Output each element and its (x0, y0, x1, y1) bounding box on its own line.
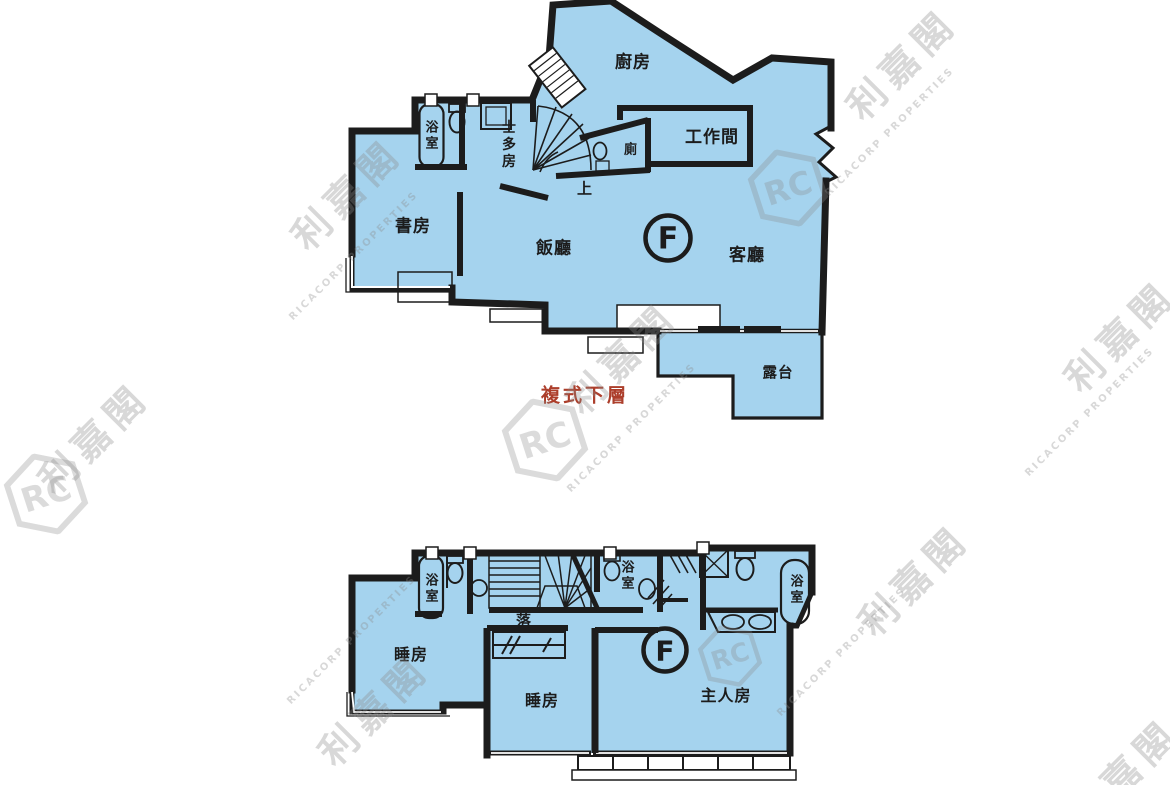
room-label-kitchen: 廚房 (615, 48, 651, 73)
room-label-balcony: 露台 (763, 362, 794, 383)
floorplan-page: 廚房 浴室 士多房 廁 工作間 上 書房 飯廳 客廳 露台 F 複式下層 浴室 … (0, 0, 1170, 785)
room-label-bathroom-middle: 浴室 (620, 560, 633, 592)
svg-text:RC: RC (759, 163, 817, 214)
room-label-dining: 飯廳 (536, 234, 572, 259)
room-label-bedroom-middle: 睡房 (525, 687, 559, 711)
svg-text:RC: RC (16, 468, 76, 521)
room-label-work-room: 工作間 (685, 123, 739, 148)
room-label-bathroom-master: 浴室 (789, 574, 802, 606)
flat-marker-lower: F (655, 635, 674, 668)
room-label-bathroom-left: 浴室 (424, 573, 437, 605)
flat-marker-upper: F (658, 222, 679, 257)
room-label-bathroom-upper: 浴室 (424, 120, 437, 152)
room-label-living: 客廳 (729, 241, 765, 266)
svg-text:RC: RC (707, 637, 753, 677)
room-label-store-room: 士多房 (501, 120, 515, 171)
bay-window (572, 756, 796, 780)
stair-direction-down: 落 (516, 610, 532, 631)
room-label-toilet: 廁 (624, 139, 638, 158)
svg-text:RC: RC (515, 414, 577, 468)
stair-direction-up: 上 (577, 178, 593, 199)
